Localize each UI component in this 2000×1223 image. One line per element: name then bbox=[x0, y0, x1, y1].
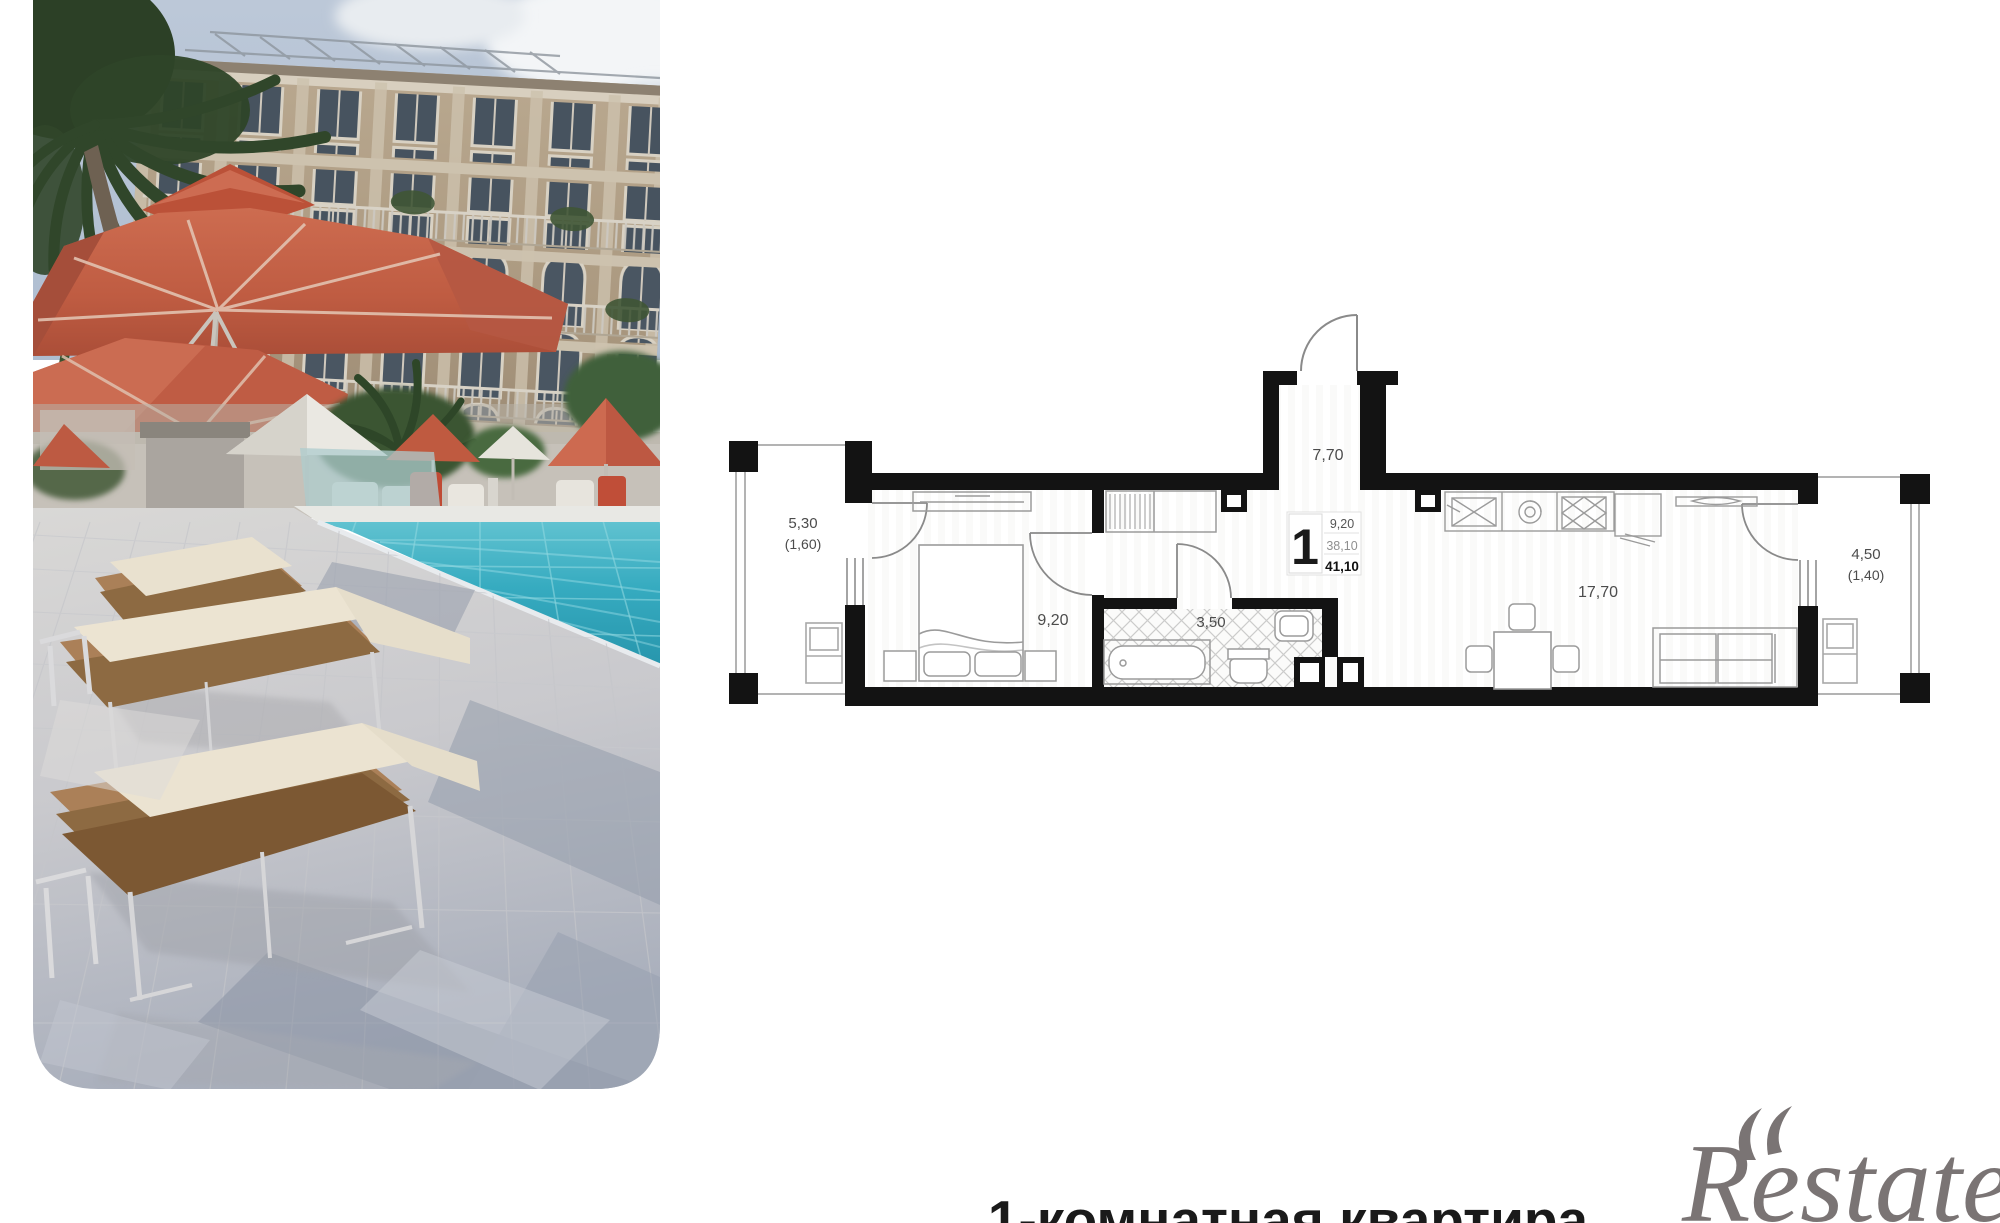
svg-text:9,20: 9,20 bbox=[1037, 612, 1068, 629]
svg-text:Restate: Restate bbox=[1681, 1122, 2000, 1223]
svg-text:7,70: 7,70 bbox=[1312, 447, 1343, 464]
svg-text:1: 1 bbox=[1291, 519, 1319, 575]
svg-text:9,20: 9,20 bbox=[1330, 517, 1354, 531]
svg-text:17,70: 17,70 bbox=[1578, 584, 1618, 601]
svg-text:4,50: 4,50 bbox=[1851, 546, 1880, 563]
svg-text:5,30: 5,30 bbox=[788, 515, 817, 532]
svg-text:(1,40): (1,40) bbox=[1848, 567, 1885, 583]
svg-text:3,50: 3,50 bbox=[1196, 614, 1225, 631]
svg-text:1-комнатная квартира: 1-комнатная квартира bbox=[988, 1189, 1589, 1223]
svg-text:38,10: 38,10 bbox=[1326, 539, 1357, 553]
svg-text:41,10: 41,10 bbox=[1325, 559, 1359, 574]
svg-text:(1,60): (1,60) bbox=[785, 536, 822, 552]
